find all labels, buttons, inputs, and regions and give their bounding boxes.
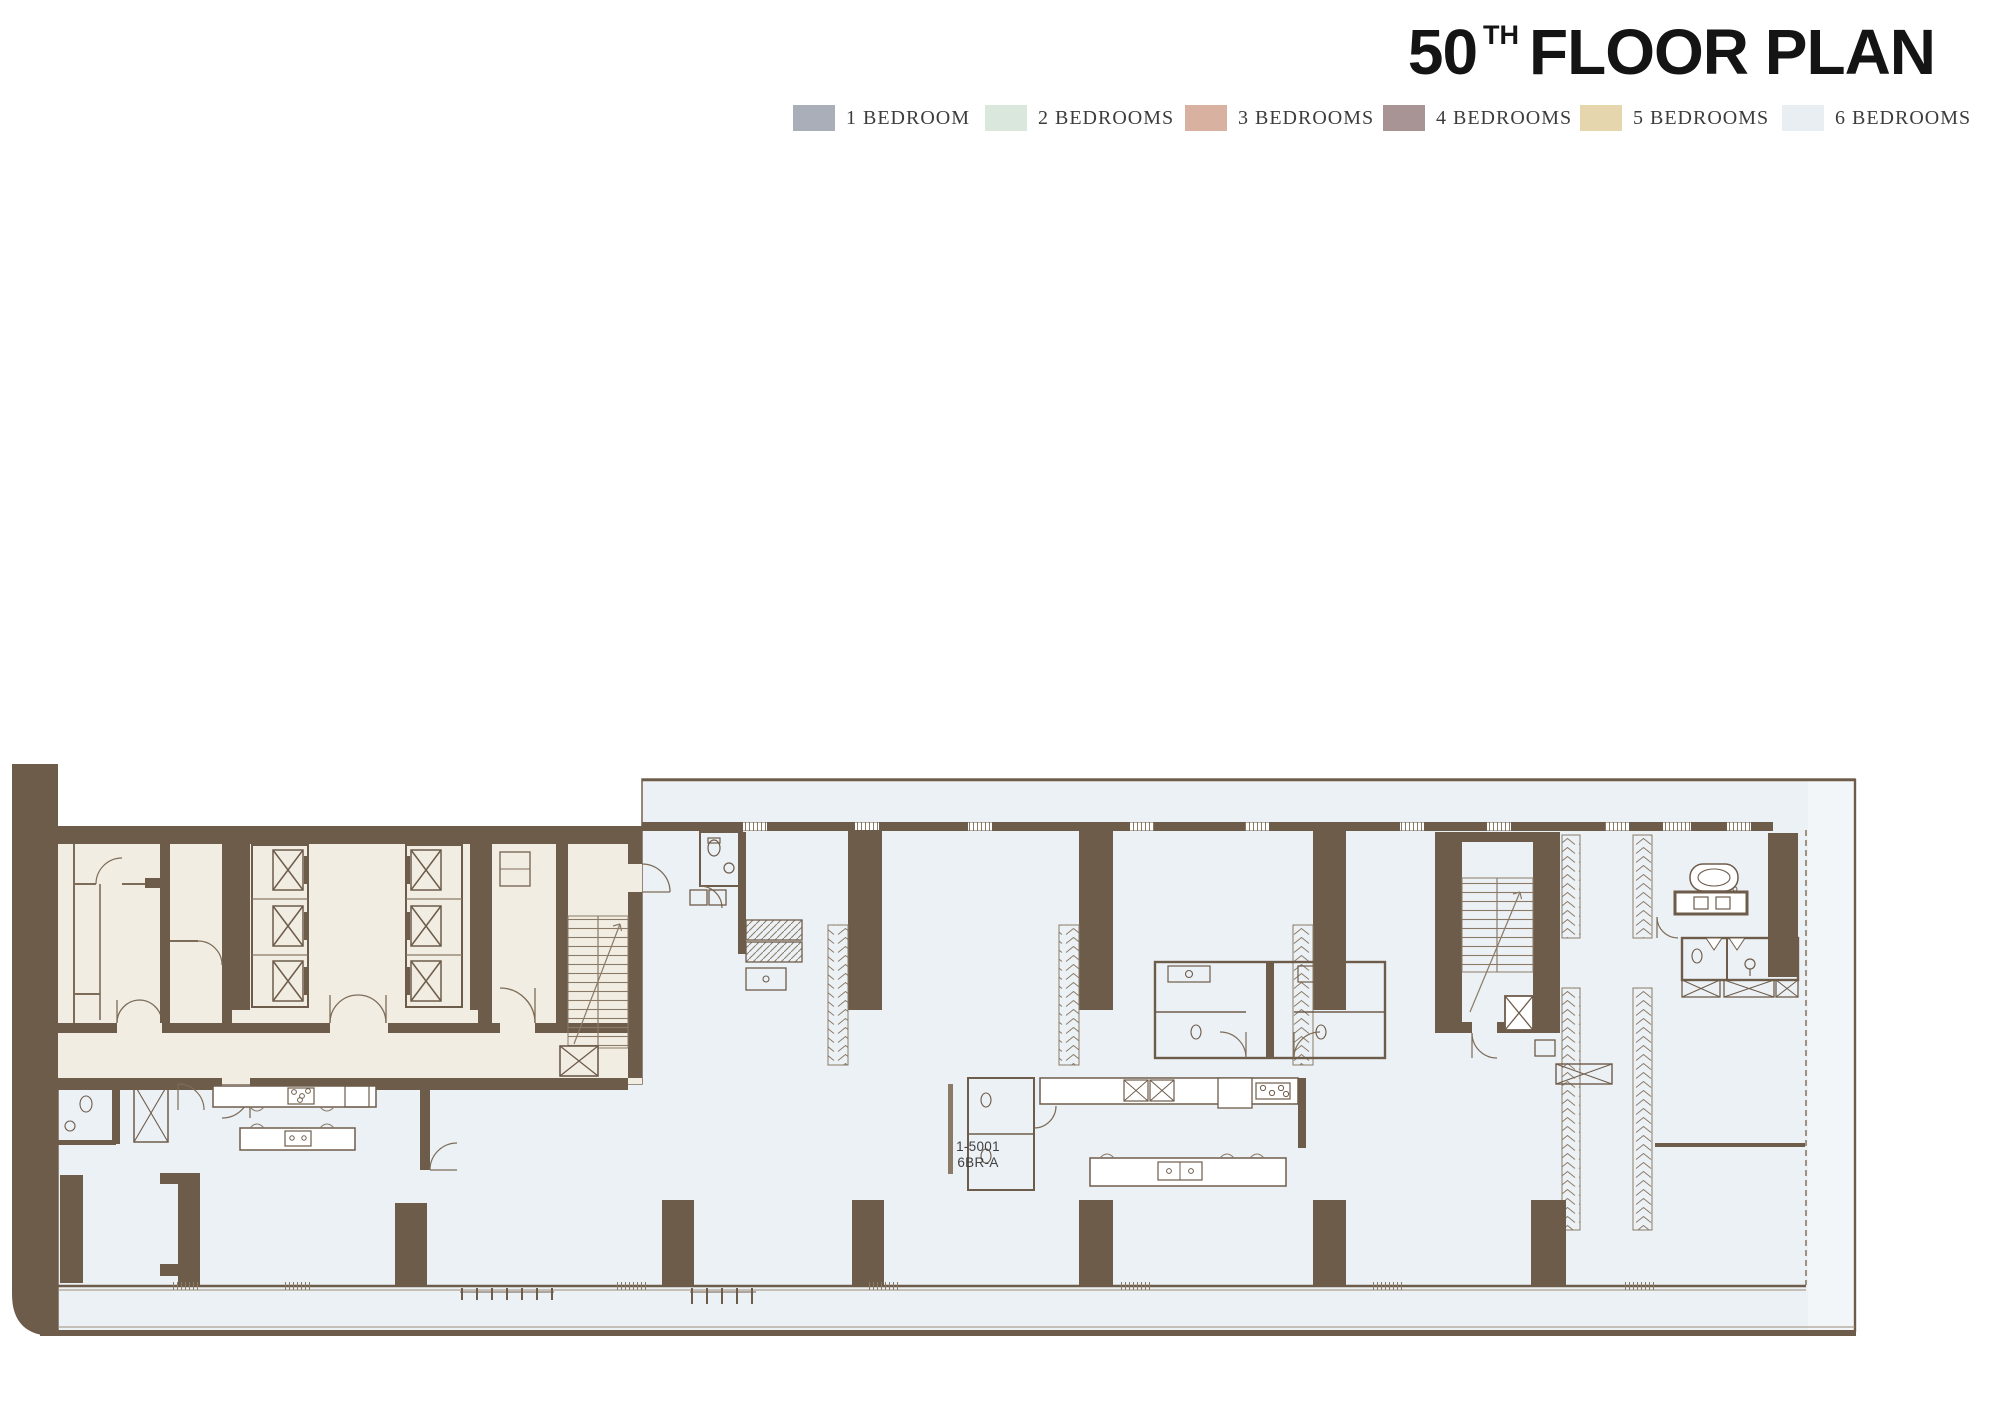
elevator-bank-left (228, 842, 309, 1010)
entry-wall (738, 832, 746, 954)
living-partition (948, 1084, 953, 1174)
floor-plan-page: 50THFLOOR PLAN 1 BEDROOM 2 BEDROOMS 3 BE… (0, 0, 2000, 1414)
west-facade-band (12, 764, 58, 1336)
unit-number: 1-5001 (956, 1139, 1000, 1154)
floor-plan-drawing: 1-5001 6BR-A (0, 0, 2000, 1414)
service-core (48, 826, 670, 1118)
unit-label: 1-5001 6BR-A (956, 1139, 1000, 1170)
terrace-wall (642, 822, 1773, 831)
unit-type: 6BR-A (957, 1155, 998, 1170)
